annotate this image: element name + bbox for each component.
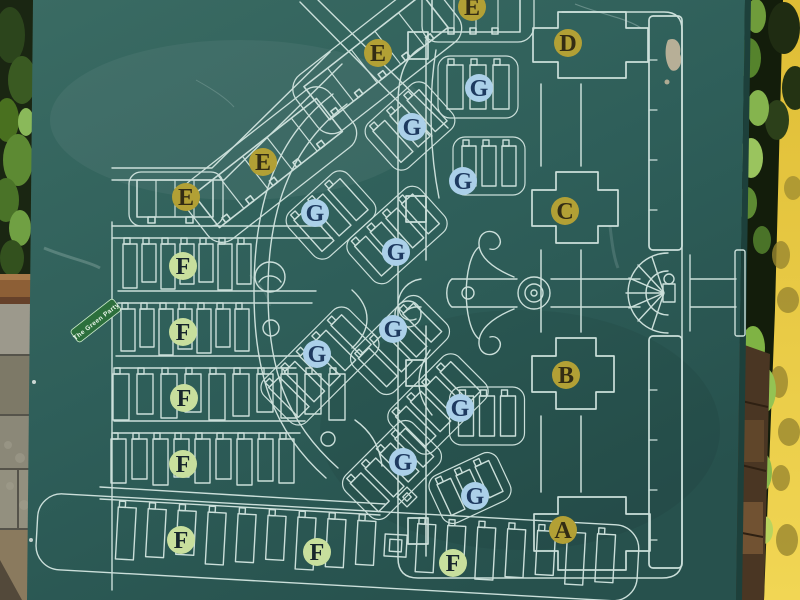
shadow: [320, 310, 720, 550]
leaf-shape: [778, 418, 800, 446]
leaf-shape: [772, 241, 790, 269]
marker-letter: G: [454, 169, 473, 195]
marker-g-23: G: [389, 448, 417, 476]
marker-letter: G: [394, 450, 413, 476]
marker-letter: G: [403, 115, 422, 141]
marker-letter: F: [174, 528, 189, 554]
marker-f-10: F: [170, 384, 198, 412]
leaf-shape: [772, 465, 790, 491]
leaf-shape: [0, 240, 24, 276]
marker-g-22: G: [446, 394, 474, 422]
marker-letter: G: [387, 240, 406, 266]
marker-g-18: G: [301, 199, 329, 227]
marker-letter: G: [466, 484, 485, 510]
marker-letter: G: [470, 76, 489, 102]
marker-g-16: G: [398, 113, 426, 141]
leaf-shape: [777, 287, 799, 313]
marker-f-13: F: [303, 538, 331, 566]
paint-chip-dot: [665, 80, 670, 85]
marker-g-24: G: [461, 482, 489, 510]
map-shape: [19, 500, 29, 510]
leaf-shape: [8, 56, 36, 104]
leaf-shape: [18, 108, 34, 136]
marker-letter: E: [178, 185, 194, 211]
map-shape: [4, 441, 12, 449]
site-map-sign-photo: The Green Party EEEEDCBAFFFFFFFGGGGGGGGG…: [0, 0, 800, 600]
marker-letter: B: [558, 363, 574, 389]
marker-f-9: F: [169, 318, 197, 346]
map-photo-canvas: The Green Party EEEEDCBAFFFFFFFGGGGGGGGG…: [0, 0, 800, 600]
marker-g-15: G: [465, 74, 493, 102]
marker-letter: F: [310, 540, 325, 566]
marker-c-5: C: [551, 197, 579, 225]
marker-f-8: F: [169, 252, 197, 280]
marker-g-17: G: [449, 167, 477, 195]
marker-letter: G: [308, 342, 327, 368]
marker-letter: G: [384, 317, 403, 343]
speck: [32, 380, 36, 384]
marker-f-14: F: [439, 549, 467, 577]
marker-e-1: E: [364, 39, 392, 67]
marker-letter: F: [446, 551, 461, 577]
leaf-shape: [768, 2, 800, 54]
marker-g-20: G: [379, 315, 407, 343]
marker-letter: E: [370, 41, 386, 67]
marker-letter: F: [177, 386, 192, 412]
speck: [29, 538, 33, 542]
marker-letter: F: [176, 254, 191, 280]
leaf-shape: [753, 226, 771, 254]
marker-g-19: G: [382, 238, 410, 266]
marker-letter: E: [255, 150, 271, 176]
map-shape: [15, 453, 25, 463]
marker-f-11: F: [169, 450, 197, 478]
marker-letter: F: [176, 320, 191, 346]
marker-e-3: E: [172, 183, 200, 211]
marker-e-2: E: [249, 148, 277, 176]
marker-letter: G: [451, 396, 470, 422]
marker-letter: F: [176, 452, 191, 478]
marker-letter: D: [559, 31, 576, 57]
map-shape: [6, 482, 14, 490]
marker-a-7: A: [549, 516, 577, 544]
marker-f-12: F: [167, 526, 195, 554]
marker-d-4: D: [554, 29, 582, 57]
marker-letter: E: [464, 0, 480, 21]
leaf-shape: [747, 90, 769, 126]
marker-letter: A: [554, 518, 572, 544]
marker-g-21: G: [303, 340, 331, 368]
marker-letter: G: [306, 201, 325, 227]
leaf-shape: [776, 524, 798, 556]
marker-letter: C: [556, 199, 573, 225]
marker-b-6: B: [552, 361, 580, 389]
